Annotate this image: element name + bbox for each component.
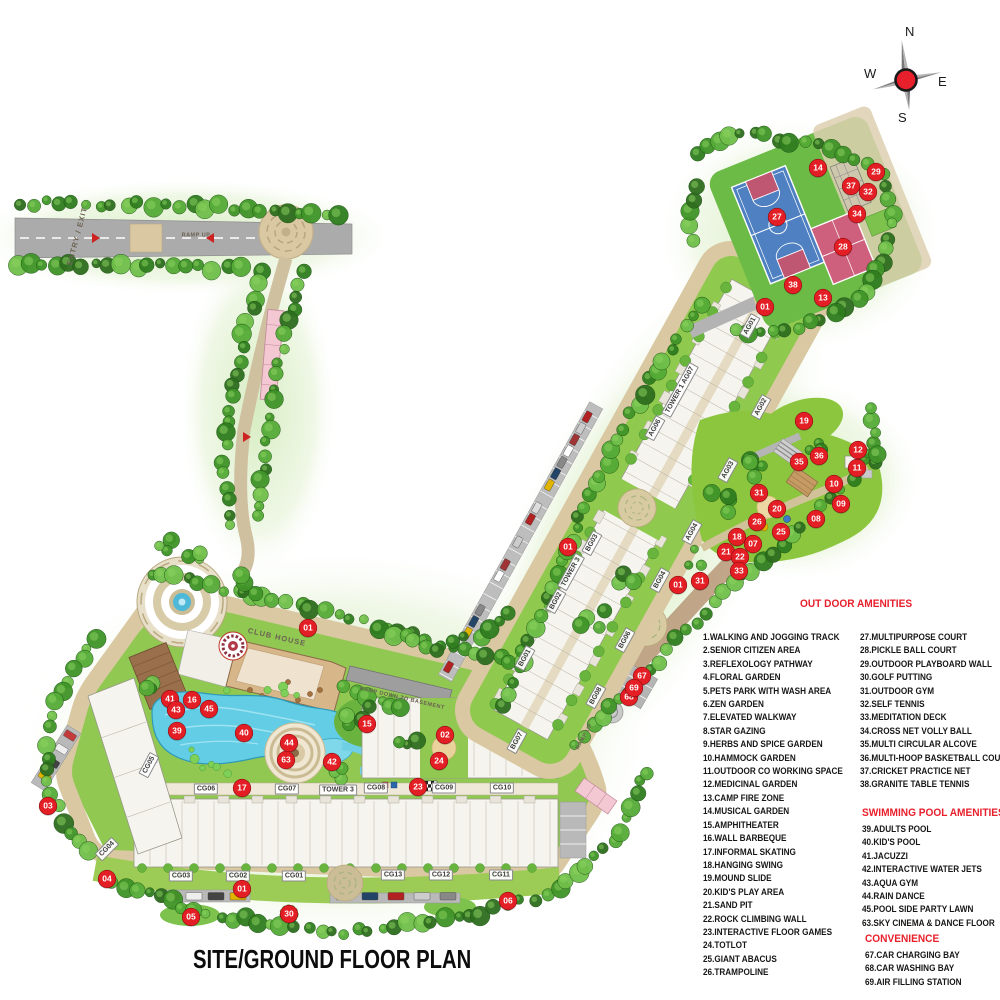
site-plan-page: CG06CG07TOWER 3CG08CG09CG10CG03CG02CG01C… — [0, 0, 1000, 1000]
legend-item: 11.OUTDOOR CO WORKING SPACE — [703, 765, 843, 778]
outdoor-amenities-col1: 1.WALKING AND JOGGING TRACK2.SENIOR CITI… — [703, 631, 843, 980]
amenity-marker: 38 — [785, 277, 802, 294]
amenity-marker: 01 — [234, 881, 251, 898]
legend-item: 3.REFLEXOLOGY PATHWAY — [703, 658, 843, 671]
legend-item: 40.KID'S POOL — [862, 836, 995, 849]
legend-item: 34.CROSS NET VOLLY BALL — [860, 725, 1000, 738]
amenity-marker: 37 — [843, 178, 860, 195]
building-label: CG08 — [364, 783, 388, 794]
building-label: CG03 — [169, 871, 193, 882]
legend-item: 39.ADULTS POOL — [862, 823, 995, 836]
legend-item: 9.HERBS AND SPICE GARDEN — [703, 738, 843, 751]
convenience-heading: CONVENIENCE — [865, 933, 939, 945]
legend-item: 2.SENIOR CITIZEN AREA — [703, 644, 843, 657]
legend-item: 13.CAMP FIRE ZONE — [703, 792, 843, 805]
amenity-marker: 06 — [500, 893, 517, 910]
amenity-marker: 02 — [437, 727, 454, 744]
compass-east-label: E — [938, 74, 947, 89]
amenity-marker: 03 — [40, 798, 57, 815]
amenity-marker: 30 — [281, 906, 298, 923]
amenity-marker: 25 — [773, 524, 790, 541]
amenity-marker: 01 — [757, 299, 774, 316]
amenity-marker: 31 — [692, 573, 709, 590]
page-title: SITE/GROUND FLOOR PLAN — [193, 944, 471, 975]
legend-item: 1.WALKING AND JOGGING TRACK — [703, 631, 843, 644]
amenities-legend: OUT DOOR AMENITIES 1.WALKING AND JOGGING… — [700, 595, 1000, 995]
amenity-marker: 19 — [796, 413, 813, 430]
legend-item: 32.SELF TENNIS — [860, 698, 1000, 711]
building-label: RAMP UP — [180, 232, 213, 241]
legend-item: 43.AQUA GYM — [862, 877, 995, 890]
amenity-marker: 29 — [868, 164, 885, 181]
amenity-marker: 16 — [184, 692, 201, 709]
legend-item: 26.TRAMPOLINE — [703, 966, 843, 979]
amenity-marker: 14 — [810, 160, 827, 177]
legend-item: 8.STAR GAZING — [703, 725, 843, 738]
legend-item: 7.ELEVATED WALKWAY — [703, 711, 843, 724]
legend-item: 35.MULTI CIRCULAR ALCOVE — [860, 738, 1000, 751]
amenity-marker: 05 — [183, 909, 200, 926]
building-label: CG10 — [490, 783, 514, 794]
legend-item: 21.SAND PIT — [703, 899, 843, 912]
legend-item: 17.INFORMAL SKATING — [703, 846, 843, 859]
amenity-marker: 01 — [560, 539, 577, 556]
legend-item: 44.RAIN DANCE — [862, 890, 995, 903]
amenity-marker: 01 — [300, 620, 317, 637]
amenity-marker: 69 — [626, 680, 643, 697]
legend-item: 37.CRICKET PRACTICE NET — [860, 765, 1000, 778]
legend-item: 63.SKY CINEMA & DANCE FLOOR — [862, 917, 995, 930]
amenity-marker: 09 — [833, 496, 850, 513]
legend-item: 31.OUTDOOR GYM — [860, 685, 1000, 698]
amenity-marker: 34 — [849, 206, 866, 223]
amenity-marker: 13 — [815, 290, 832, 307]
legend-item: 4.FLORAL GARDEN — [703, 671, 843, 684]
amenity-marker: 27 — [769, 209, 786, 226]
amenity-marker: 35 — [791, 454, 808, 471]
pool-amenities-heading: SWIMMING POOL AMENITIES — [862, 807, 1000, 819]
legend-item: 12.MEDICINAL GARDEN — [703, 778, 843, 791]
amenity-marker: 39 — [169, 723, 186, 740]
legend-item: 69.AIR FILLING STATION — [865, 976, 962, 989]
legend-item: 67.CAR CHARGING BAY — [865, 949, 962, 962]
legend-item: 19.MOUND SLIDE — [703, 872, 843, 885]
legend-item: 45.POOL SIDE PARTY LAWN — [862, 903, 995, 916]
amenity-marker: 23 — [410, 779, 427, 796]
legend-item: 14.MUSICAL GARDEN — [703, 805, 843, 818]
amenity-marker: 44 — [281, 735, 298, 752]
amenity-marker: 10 — [826, 476, 843, 493]
amenity-marker: 33 — [731, 563, 748, 580]
outdoor-amenities-col2: 27.MULTIPURPOSE COURT28.PICKLE BALL COUR… — [860, 631, 1000, 792]
amenity-marker: 43 — [168, 702, 185, 719]
amenity-marker: 17 — [234, 780, 251, 797]
building-label: CG02 — [226, 871, 250, 882]
legend-item: 29.OUTDOOR PLAYBOARD WALL — [860, 658, 1000, 671]
amenity-marker: 40 — [236, 725, 253, 742]
compass-west-label: W — [864, 66, 876, 81]
legend-item: 42.INTERACTIVE WATER JETS — [862, 863, 995, 876]
amenity-marker: 24 — [431, 753, 448, 770]
amenity-marker: 32 — [860, 184, 877, 201]
compass-south-label: S — [898, 110, 907, 125]
amenity-marker: 45 — [201, 701, 218, 718]
amenity-marker: 07 — [745, 536, 762, 553]
amenity-marker: 18 — [729, 529, 746, 546]
building-label: CG06 — [194, 784, 218, 795]
amenity-marker: 42 — [324, 754, 341, 771]
building-label: CG12 — [429, 870, 453, 881]
amenity-marker: 63 — [278, 752, 295, 769]
building-label: CG11 — [489, 870, 513, 881]
amenity-marker: 36 — [811, 448, 828, 465]
legend-item: 36.MULTI-HOOP BASKETBALL COURT — [860, 752, 1000, 765]
amenity-marker: 15 — [359, 716, 376, 733]
amenity-marker: 04 — [99, 871, 116, 888]
building-label: TOWER 3 — [319, 785, 357, 796]
amenity-marker: 20 — [769, 501, 786, 518]
legend-item: 38.GRANITE TABLE TENNIS — [860, 778, 1000, 791]
building-label: CG09 — [432, 783, 456, 794]
legend-item: 6.ZEN GARDEN — [703, 698, 843, 711]
amenity-marker: 31 — [751, 485, 768, 502]
outdoor-amenities-heading: OUT DOOR AMENITIES — [800, 598, 912, 610]
legend-item: 23.INTERACTIVE FLOOR GAMES — [703, 926, 843, 939]
legend-item: 24.TOTLOT — [703, 939, 843, 952]
compass-rose: N S E W — [856, 28, 956, 128]
amenity-marker: 08 — [808, 511, 825, 528]
legend-item: 22.ROCK CLIMBING WALL — [703, 913, 843, 926]
legend-item: 16.WALL BARBEQUE — [703, 832, 843, 845]
pool-amenities-list: 39.ADULTS POOL40.KID'S POOL41.JACUZZI42.… — [862, 823, 995, 930]
amenity-marker: 26 — [749, 514, 766, 531]
legend-item: 20.KID'S PLAY AREA — [703, 886, 843, 899]
legend-item: 28.PICKLE BALL COURT — [860, 644, 1000, 657]
building-label: CG07 — [275, 784, 299, 795]
legend-item: 27.MULTIPURPOSE COURT — [860, 631, 1000, 644]
legend-item: 10.HAMMOCK GARDEN — [703, 752, 843, 765]
compass-north-label: N — [905, 24, 914, 39]
legend-item: 18.HANGING SWING — [703, 859, 843, 872]
legend-item: 41.JACUZZI — [862, 850, 995, 863]
legend-item: 33.MEDITATION DECK — [860, 711, 1000, 724]
convenience-list: 67.CAR CHARGING BAY68.CAR WASHING BAY69.… — [865, 949, 962, 989]
amenity-marker: 01 — [670, 577, 687, 594]
building-label: CG13 — [381, 870, 405, 881]
legend-item: 15.AMPHITHEATER — [703, 819, 843, 832]
amenity-marker: 28 — [835, 239, 852, 256]
legend-item: 5.PETS PARK WITH WASH AREA — [703, 685, 843, 698]
building-label: CG01 — [282, 871, 306, 882]
legend-item: 68.CAR WASHING BAY — [865, 962, 962, 975]
amenity-marker: 12 — [850, 442, 867, 459]
legend-item: 30.GOLF PUTTING — [860, 671, 1000, 684]
amenity-marker: 11 — [849, 460, 866, 477]
legend-item: 25.GIANT ABACUS — [703, 953, 843, 966]
